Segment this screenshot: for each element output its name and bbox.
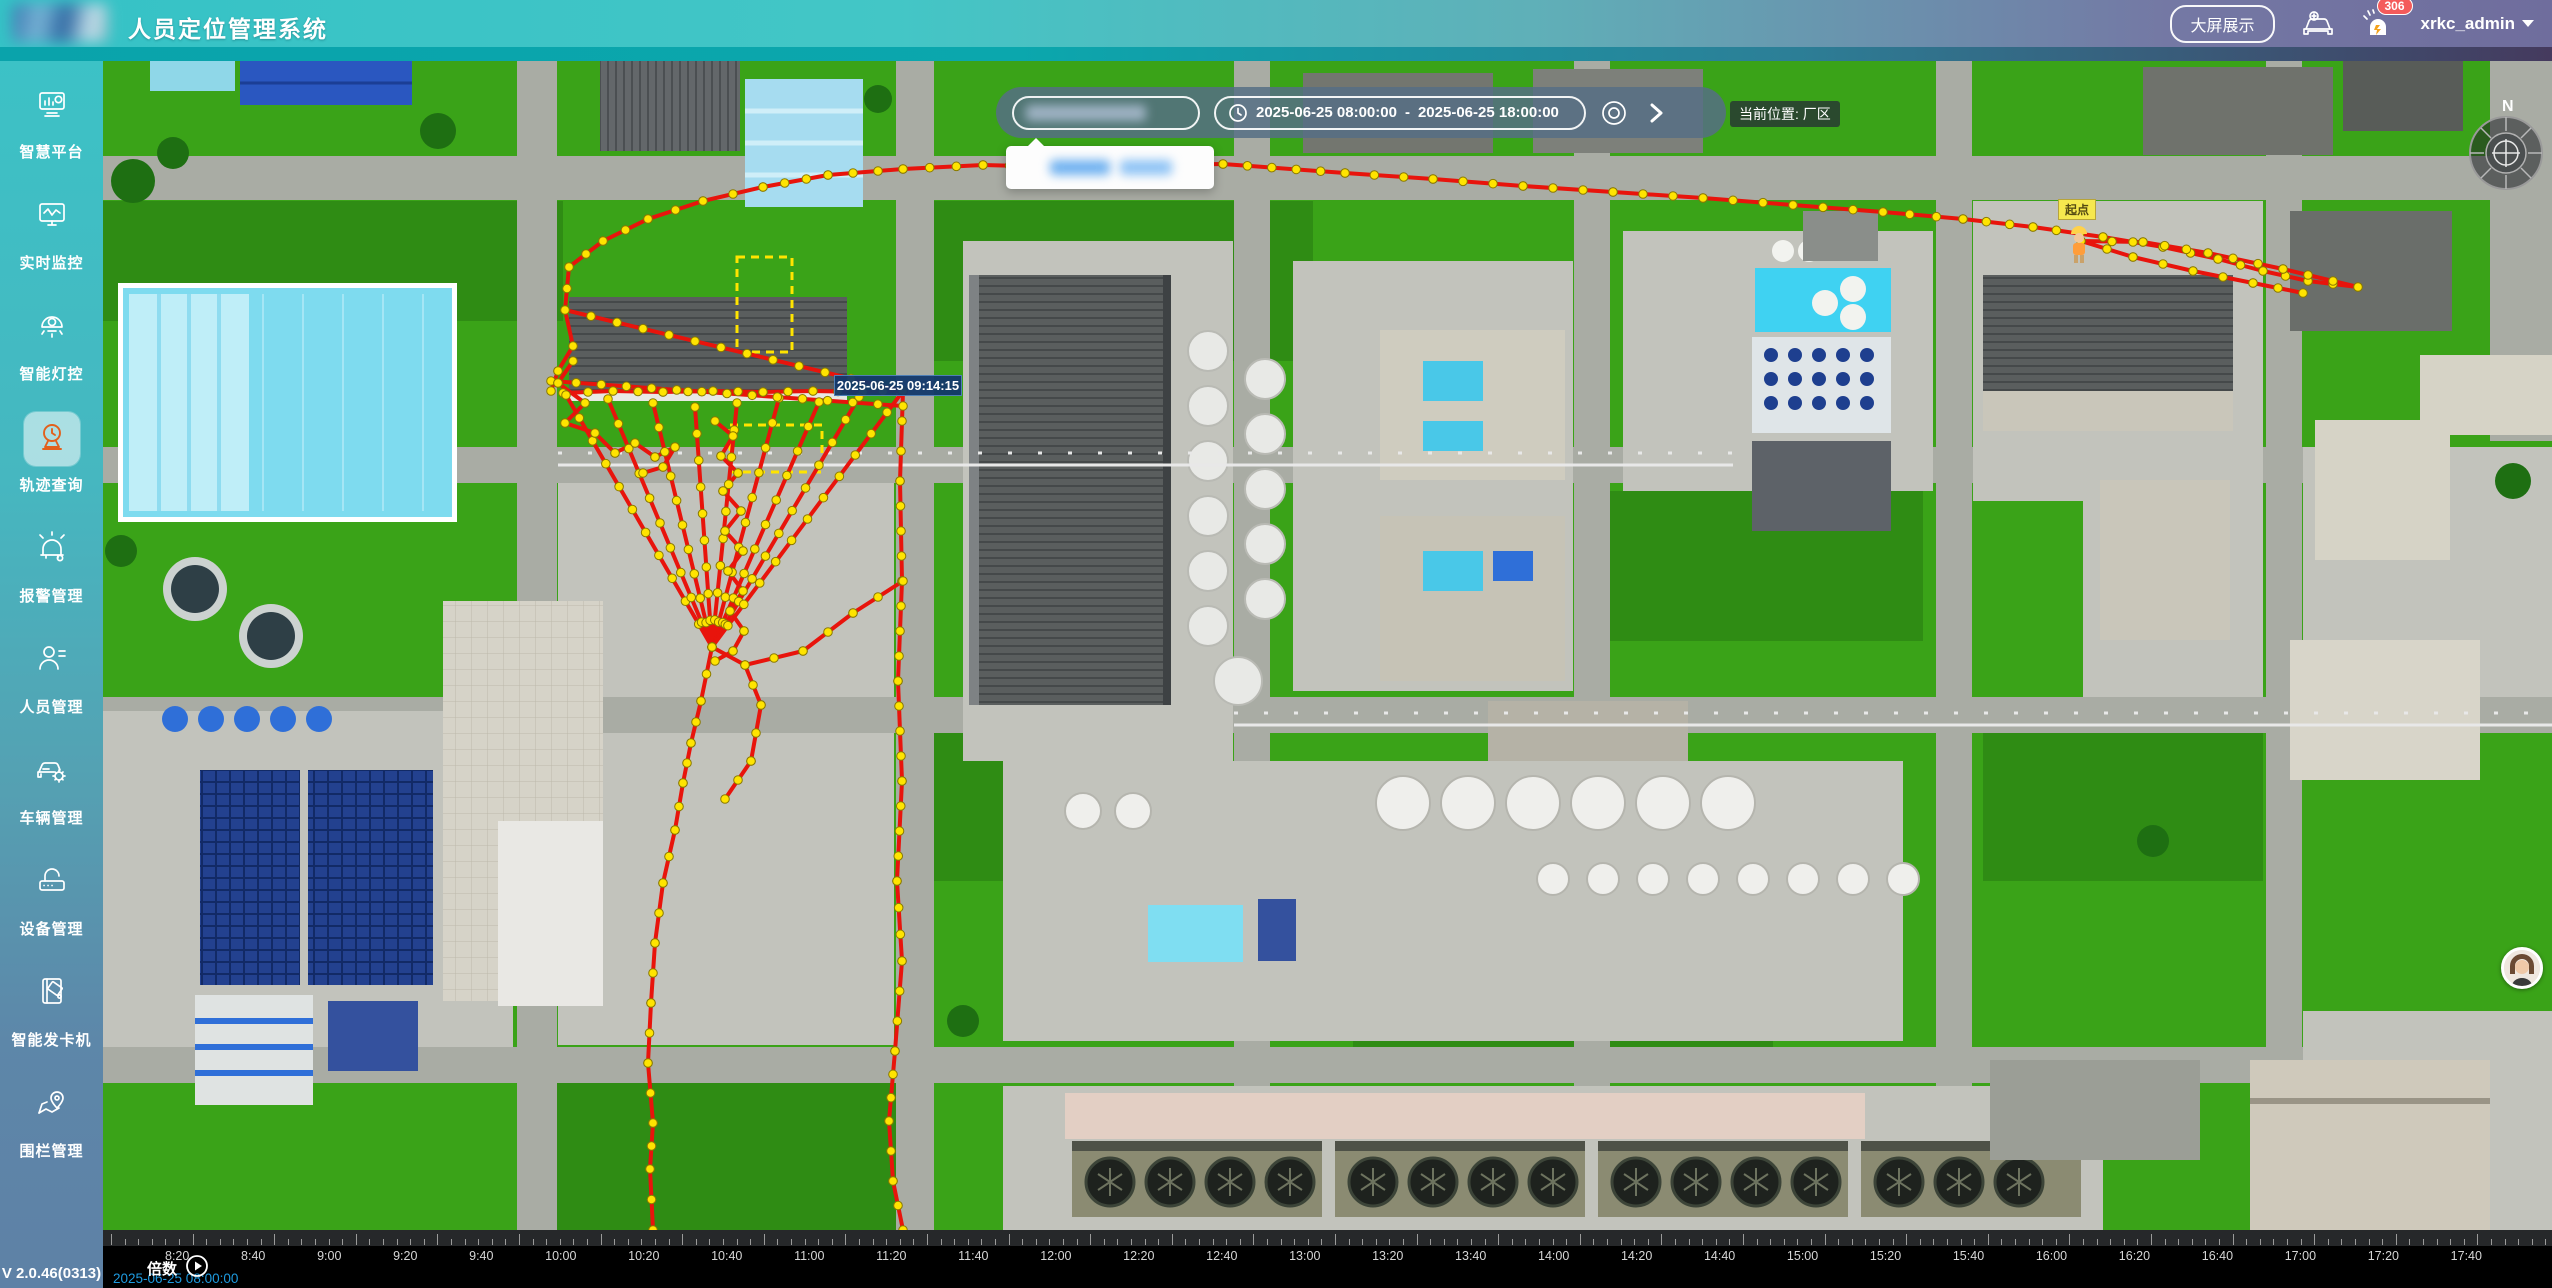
realtime-monitor-icon — [35, 198, 69, 237]
timeline-tick-label: 13:00 — [1289, 1249, 1320, 1263]
timeline-tick-row[interactable] — [103, 1230, 2552, 1246]
timeline-tick-label: 12:00 — [1040, 1249, 1071, 1263]
sidebar-item-alarm-mgmt[interactable]: 报警管理 — [0, 523, 103, 634]
timeline-tick-label: 11:00 — [794, 1249, 824, 1263]
timeline-tick-label: 17:00 — [2285, 1249, 2316, 1263]
timeline-tick-label: 10:20 — [628, 1249, 659, 1263]
sidebar-item-card-dispenser[interactable]: 智能发卡机 — [0, 967, 103, 1078]
sidebar-item-realtime-monitor[interactable]: 实时监控 — [0, 190, 103, 301]
device-icon — [35, 864, 69, 903]
redacted-suggestion-text — [1120, 160, 1172, 175]
vehicle-gear-icon — [35, 753, 69, 792]
card-dispenser-icon — [35, 975, 69, 1014]
play-next-icon[interactable] — [1642, 99, 1670, 127]
timeline-tick-label: 15:40 — [1953, 1249, 1984, 1263]
version-text: V 2.0.46(0313) — [0, 1265, 103, 1282]
date-separator: - — [1405, 104, 1410, 121]
start-point-label: 起点 — [2058, 199, 2096, 220]
username-text: xrkc_admin — [2421, 14, 2516, 34]
sidebar-item-vehicle-mgmt[interactable]: 车辆管理 — [0, 745, 103, 856]
sidebar-item-label: 智能发卡机 — [11, 1029, 91, 1050]
person-icon — [35, 642, 69, 681]
sidebar-item-label: 轨迹查询 — [19, 474, 83, 495]
compass-control[interactable]: N — [2468, 95, 2544, 196]
timeline-tick-label: 16:00 — [2036, 1249, 2067, 1263]
sidebar-item-label: 人员管理 — [19, 696, 83, 717]
app-header: 人员定位管理系统 大屏展示 306 xrkc_admin — [0, 0, 2552, 47]
playback-timeline[interactable]: 8:208:409:009:209:4010:0010:2010:4011:00… — [103, 1230, 2552, 1288]
person-search-input[interactable] — [1012, 96, 1200, 130]
vehicle-monitor-icon[interactable] — [2301, 9, 2335, 39]
clock-icon — [1228, 103, 1248, 123]
redacted-search-text — [1026, 105, 1146, 121]
timeline-tick-label: 14:00 — [1538, 1249, 1569, 1263]
timeline-tick-label: 11:20 — [876, 1249, 906, 1263]
sidebar-nav: 智慧平台 实时监控 智能灯控 轨迹查询 报警管理 — [0, 47, 103, 1288]
timeline-tick-label: 17:40 — [2451, 1249, 2482, 1263]
track-query-toolbar: 2025-06-25 08:00:00 - 2025-06-25 18:00:0… — [996, 87, 1726, 138]
compass-north-text: N — [2502, 98, 2514, 115]
date-start: 2025-06-25 08:00:00 — [1256, 104, 1397, 121]
map-viewport[interactable] — [103, 61, 2552, 1230]
current-location-label: 当前位置: 厂区 — [1730, 101, 1840, 127]
timeline-tick-label: 11:40 — [958, 1249, 988, 1263]
timeline-tick-label: 12:20 — [1123, 1249, 1154, 1263]
dashboard-monitor-icon — [35, 87, 69, 126]
sidebar-item-label: 设备管理 — [19, 918, 83, 939]
sidebar-item-track-query[interactable]: 轨迹查询 — [0, 412, 103, 523]
timeline-tick-label: 15:20 — [1870, 1249, 1901, 1263]
notification-badge: 306 — [2377, 0, 2413, 15]
header-accent-strip — [0, 47, 2552, 61]
redacted-suggestion-text — [1050, 160, 1110, 175]
chevron-down-icon — [2522, 20, 2534, 27]
date-end: 2025-06-25 18:00:00 — [1418, 104, 1559, 121]
fence-map-pin-icon — [35, 1086, 69, 1125]
track-time-tooltip: 2025-06-25 09:14:15 — [834, 375, 962, 396]
sidebar-item-smart-platform[interactable]: 智慧平台 — [0, 79, 103, 190]
timeline-tick-label: 17:20 — [2368, 1249, 2399, 1263]
timeline-tick-label: 16:20 — [2119, 1249, 2150, 1263]
search-suggestion-dropdown[interactable] — [1006, 146, 1214, 189]
timeline-tick-label: 9:20 — [393, 1249, 417, 1263]
big-screen-button[interactable]: 大屏展示 — [2170, 5, 2274, 43]
timeline-tick-label: 8:40 — [241, 1249, 265, 1263]
timeline-tick-label: 13:20 — [1372, 1249, 1403, 1263]
smart-light-icon — [35, 309, 69, 348]
date-range-picker[interactable]: 2025-06-25 08:00:00 - 2025-06-25 18:00:0… — [1214, 96, 1586, 130]
sidebar-item-label: 围栏管理 — [19, 1140, 83, 1161]
app-logo — [12, 4, 108, 42]
app-title: 人员定位管理系统 — [128, 10, 328, 44]
alarm-notifications-icon[interactable]: 306 — [2361, 9, 2395, 39]
timeline-tick-label: 15:00 — [1787, 1249, 1818, 1263]
person-avatar-marker[interactable] — [2501, 947, 2543, 989]
sidebar-item-label: 报警管理 — [19, 585, 83, 606]
timeline-tick-label: 9:00 — [317, 1249, 341, 1263]
timeline-tick-label: 10:40 — [711, 1249, 742, 1263]
timeline-tick-label: 9:40 — [469, 1249, 493, 1263]
timeline-tick-label: 13:40 — [1455, 1249, 1486, 1263]
timeline-labels: 8:208:409:009:209:4010:0010:2010:4011:00… — [103, 1249, 2552, 1263]
sidebar-item-device-mgmt[interactable]: 设备管理 — [0, 856, 103, 967]
speed-label: 倍数 — [147, 1258, 177, 1279]
worker-figure-marker[interactable] — [2066, 224, 2092, 269]
user-menu[interactable]: xrkc_admin — [2421, 14, 2535, 34]
timeline-tick-label: 10:00 — [545, 1249, 576, 1263]
timeline-tick-label: 14:20 — [1621, 1249, 1652, 1263]
locate-search-icon[interactable] — [1600, 99, 1628, 127]
sidebar-item-person-mgmt[interactable]: 人员管理 — [0, 634, 103, 745]
sidebar-item-fence-mgmt[interactable]: 围栏管理 — [0, 1078, 103, 1189]
play-button[interactable] — [185, 1254, 209, 1282]
timeline-tick-label: 14:40 — [1704, 1249, 1735, 1263]
sidebar-item-label: 实时监控 — [19, 252, 83, 273]
sidebar-item-label: 智能灯控 — [19, 363, 83, 384]
track-query-icon — [35, 420, 69, 459]
sidebar-item-label: 车辆管理 — [19, 807, 83, 828]
timeline-tick-label: 12:40 — [1206, 1249, 1237, 1263]
sidebar-item-label: 智慧平台 — [19, 141, 83, 162]
timeline-tick-label: 16:40 — [2202, 1249, 2233, 1263]
sidebar-item-smart-light[interactable]: 智能灯控 — [0, 301, 103, 412]
alarm-bell-icon — [35, 531, 69, 570]
map-base-layer — [103, 61, 2552, 1230]
